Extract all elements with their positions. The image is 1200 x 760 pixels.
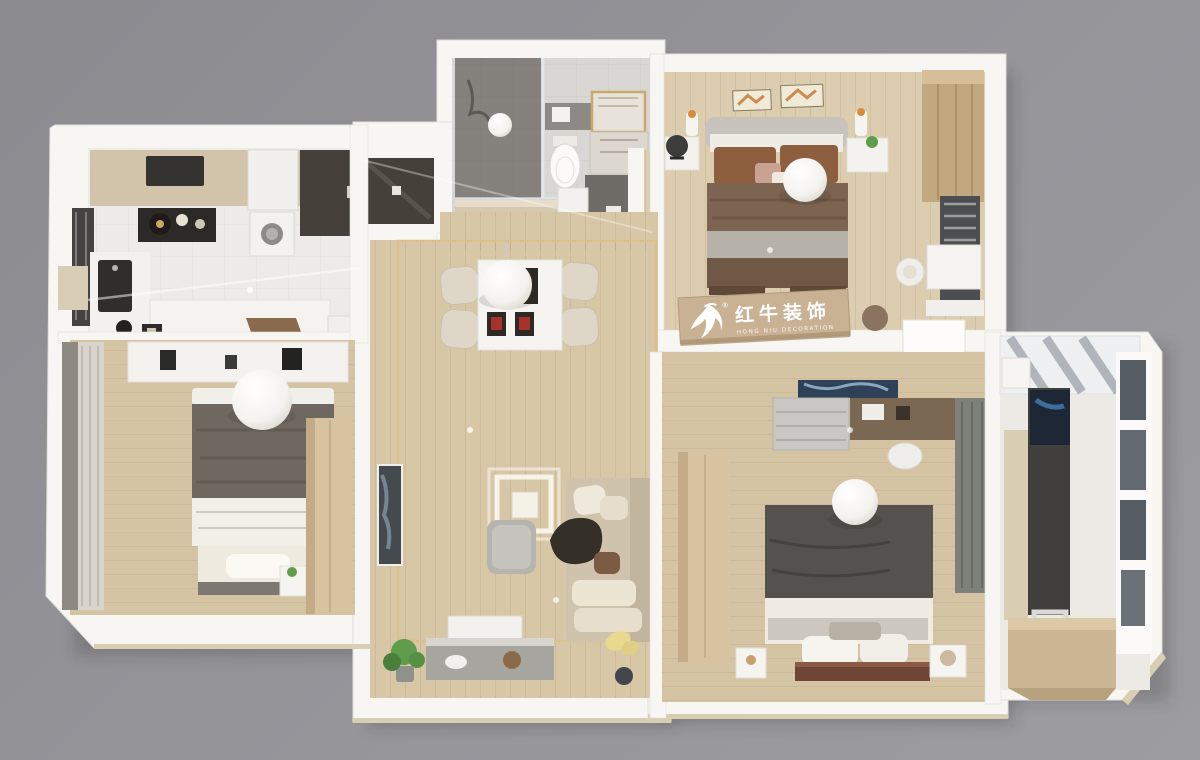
cooktop xyxy=(146,156,204,186)
small-plant xyxy=(287,567,297,577)
floor-glare xyxy=(247,287,253,293)
floorplan-svg: ® 红牛装饰 HONG NIU DECORATION xyxy=(0,0,1200,760)
window-pane xyxy=(1120,360,1146,420)
pillow xyxy=(802,636,858,666)
toilet xyxy=(550,144,580,188)
cushion xyxy=(829,622,881,640)
window-wall xyxy=(1116,352,1152,654)
wall-art xyxy=(378,465,402,565)
dining-chair xyxy=(440,309,481,350)
monitor xyxy=(1030,390,1070,445)
wall-kitchen-living xyxy=(350,125,368,343)
peninsula-counter xyxy=(150,300,330,336)
window-pane xyxy=(1120,430,1146,490)
office-chair xyxy=(666,135,688,157)
floor-glare xyxy=(847,427,853,433)
wall-bedroom2-balcony xyxy=(985,332,1001,704)
room-bedroom-2 xyxy=(662,352,991,702)
decor-box xyxy=(282,348,302,370)
floor-glare xyxy=(767,247,773,253)
dining-chair xyxy=(558,261,599,301)
decor-bowl xyxy=(445,655,467,669)
wall-frame-2 xyxy=(781,84,824,107)
room-left-bedroom xyxy=(62,340,355,615)
decor-knot xyxy=(503,651,521,669)
ceiling-light xyxy=(783,158,827,202)
towel xyxy=(552,107,570,122)
shower-ceiling-light xyxy=(488,113,512,137)
window-pane xyxy=(1120,500,1146,560)
floor-glare xyxy=(467,427,473,433)
base-edge xyxy=(94,644,375,649)
window-pane xyxy=(1121,570,1145,626)
bed-foot xyxy=(707,258,848,288)
throw-blanket xyxy=(707,231,848,258)
sofa-pillow xyxy=(600,496,628,520)
master-bed xyxy=(705,117,848,295)
dining-chair xyxy=(559,307,600,348)
fridge xyxy=(248,150,298,210)
faucet xyxy=(112,265,118,271)
room-balcony-study xyxy=(1000,336,1152,700)
watermark-banner: ® 红牛装饰 HONG NIU DECORATION xyxy=(678,289,850,346)
pouf xyxy=(862,305,888,331)
decor-vase xyxy=(160,350,176,370)
wardrobe xyxy=(922,70,984,202)
bed-duvet xyxy=(707,183,848,233)
jar xyxy=(176,214,188,226)
render-canvas: ® 红牛装饰 HONG NIU DECORATION xyxy=(0,0,1200,760)
ceiling-light xyxy=(232,370,292,430)
pendant-light xyxy=(482,260,532,310)
dining-chair xyxy=(440,265,481,305)
side-panel xyxy=(1004,430,1028,620)
registered-mark: ® xyxy=(721,301,728,309)
base-edge xyxy=(353,718,671,723)
ceiling-light xyxy=(832,479,878,525)
wash-basin xyxy=(1002,358,1030,388)
plant xyxy=(866,136,878,148)
bedside-lamp xyxy=(940,650,956,666)
room-living-dining xyxy=(370,212,658,698)
base-edge xyxy=(648,714,1008,719)
side-shelf xyxy=(58,266,88,310)
stool xyxy=(888,443,922,469)
wall-frame-1 xyxy=(733,90,772,111)
desk xyxy=(927,245,981,289)
sofa-pillow-brown xyxy=(594,552,620,574)
window-sill xyxy=(926,300,984,316)
curtain xyxy=(62,342,78,610)
floor-glare xyxy=(553,597,559,603)
dresser xyxy=(773,398,849,450)
